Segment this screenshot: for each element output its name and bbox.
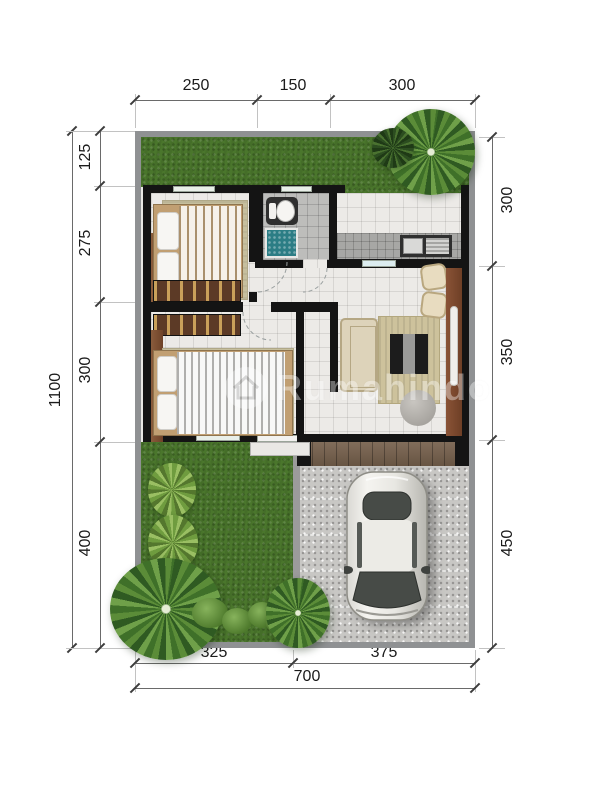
sink-drainboard (426, 238, 449, 254)
dim-label-left-275: 275 (77, 213, 95, 273)
toilet-tank (269, 203, 276, 219)
floor-plan-canvas: 250 150 300 1100 125 275 300 400 300 350… (0, 0, 616, 800)
dim-label-top-250: 250 (166, 77, 226, 95)
side-table-pouf (400, 390, 436, 426)
dim-line-right (492, 137, 493, 648)
wall-bedroom-2-right (296, 312, 304, 442)
entry-step (250, 442, 310, 456)
dim-line-left-total (72, 131, 73, 648)
dim-label-right-450: 450 (499, 513, 517, 573)
window-bedroom-1 (173, 186, 215, 192)
bedroom-2-pillow-a (157, 356, 177, 392)
dim-line-top (135, 100, 475, 101)
tv-cabinet (390, 334, 428, 374)
palm-bottom-right-garden (266, 578, 330, 648)
toilet (266, 197, 298, 225)
dim-label-top-150: 150 (263, 77, 323, 95)
window-kitchen (362, 260, 396, 267)
dining-chair-1 (419, 262, 448, 291)
dim-label-left-400: 400 (77, 513, 95, 573)
plant-top-right-small (372, 128, 414, 168)
console-handle (450, 306, 458, 386)
dining-chair-2 (420, 291, 449, 320)
fern-left-1 (148, 463, 196, 517)
dim-line-bottom-total (135, 688, 475, 689)
wardrobe-2 (153, 314, 241, 336)
dim-line-bottom (135, 663, 475, 664)
dim-label-left-125: 125 (77, 127, 95, 187)
wall-mid-right (271, 302, 338, 312)
kitchen-sink (400, 235, 452, 257)
dim-label-right-300: 300 (499, 170, 517, 230)
wall-bedroom-1-right-low (249, 292, 257, 302)
wall-left (143, 193, 151, 442)
toilet-bowl (276, 200, 295, 222)
wall-right (461, 185, 469, 442)
terrace-deck (300, 442, 469, 466)
bedroom-1-pillow-a (157, 212, 179, 250)
dim-guide (66, 648, 138, 649)
dim-line-left (100, 131, 101, 648)
car (344, 470, 430, 622)
wardrobe-1 (153, 280, 241, 302)
wall-mid (143, 302, 243, 312)
wall-kitchen-bottom (330, 259, 469, 268)
dim-label-left-300: 300 (77, 340, 95, 400)
tv-cabinet-center (403, 334, 415, 374)
wall-carport-pillar-right (455, 434, 469, 466)
wall-living-left (330, 312, 338, 392)
water-tub (265, 228, 298, 258)
sofa-cushion (350, 326, 376, 388)
dim-label-top-300: 300 (372, 77, 432, 95)
dim-label-right-350: 350 (499, 322, 517, 382)
sink-basin (403, 238, 423, 254)
dim-label-bottom-700: 700 (277, 668, 337, 686)
bedroom-2-blanket (177, 352, 285, 434)
dim-label-left-1100: 1100 (47, 360, 65, 420)
bedroom-2-pillow-b (157, 394, 177, 430)
wall-bedroom-1-right (249, 193, 257, 262)
bathroom-door-gap (303, 259, 327, 268)
window-bathroom (281, 186, 312, 192)
sofa (340, 318, 378, 392)
